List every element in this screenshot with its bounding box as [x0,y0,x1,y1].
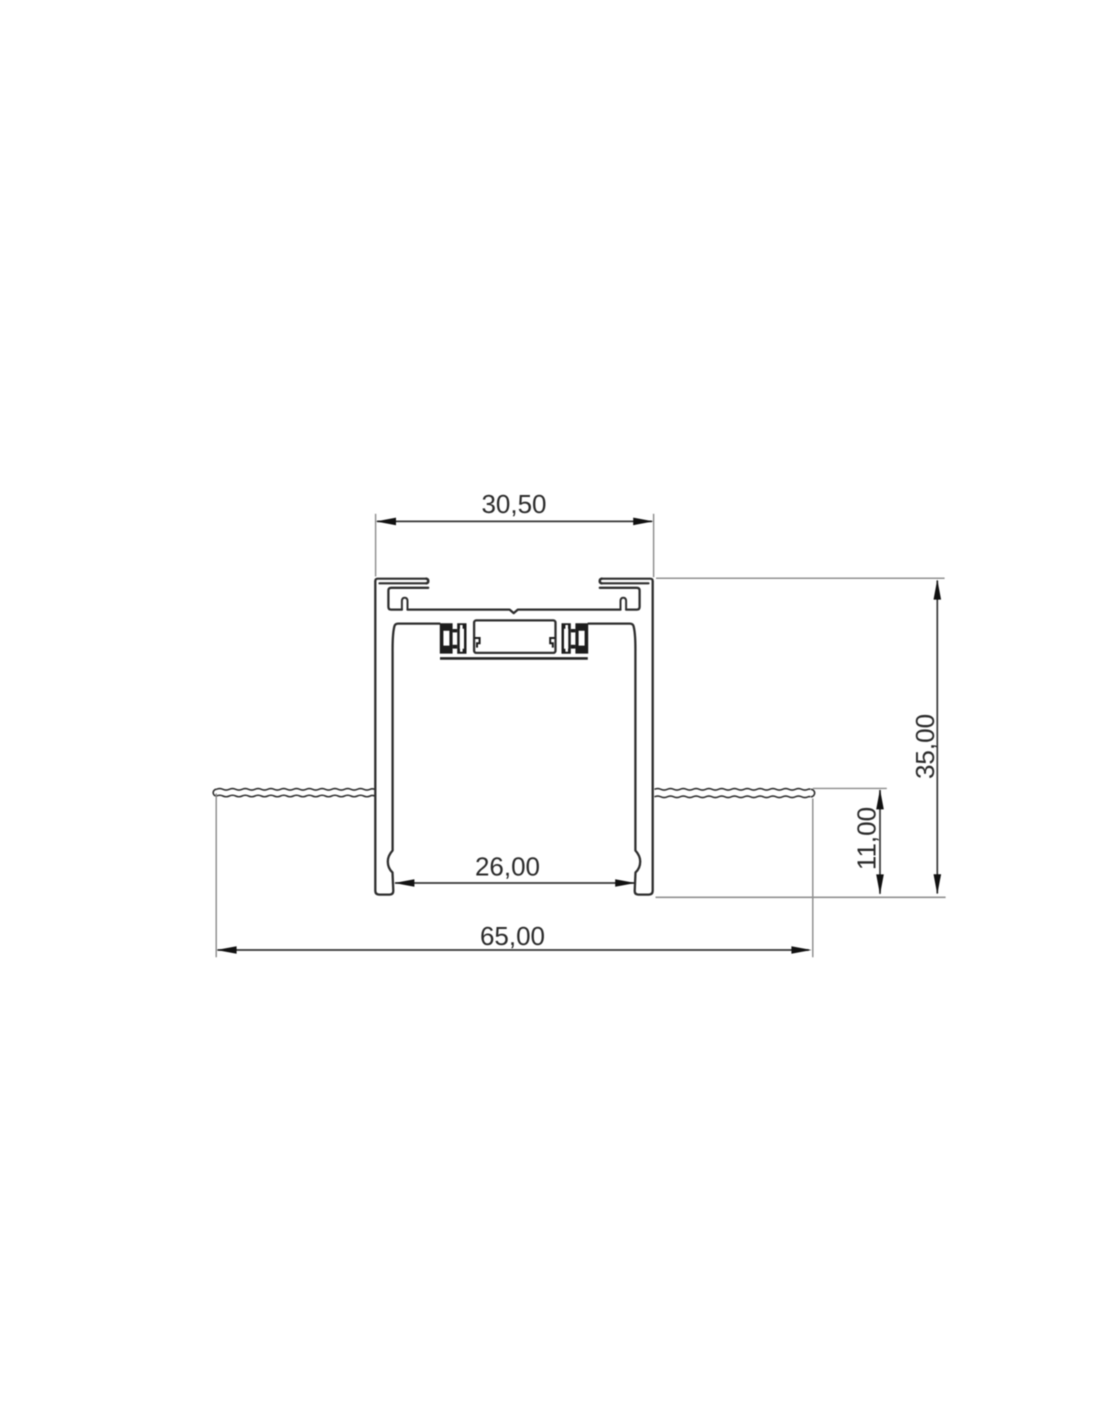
svg-text:65,00: 65,00 [480,921,545,951]
svg-text:35,00: 35,00 [910,714,940,779]
svg-text:30,50: 30,50 [481,489,546,519]
svg-text:26,00: 26,00 [475,852,540,882]
svg-text:11,00: 11,00 [851,807,881,870]
